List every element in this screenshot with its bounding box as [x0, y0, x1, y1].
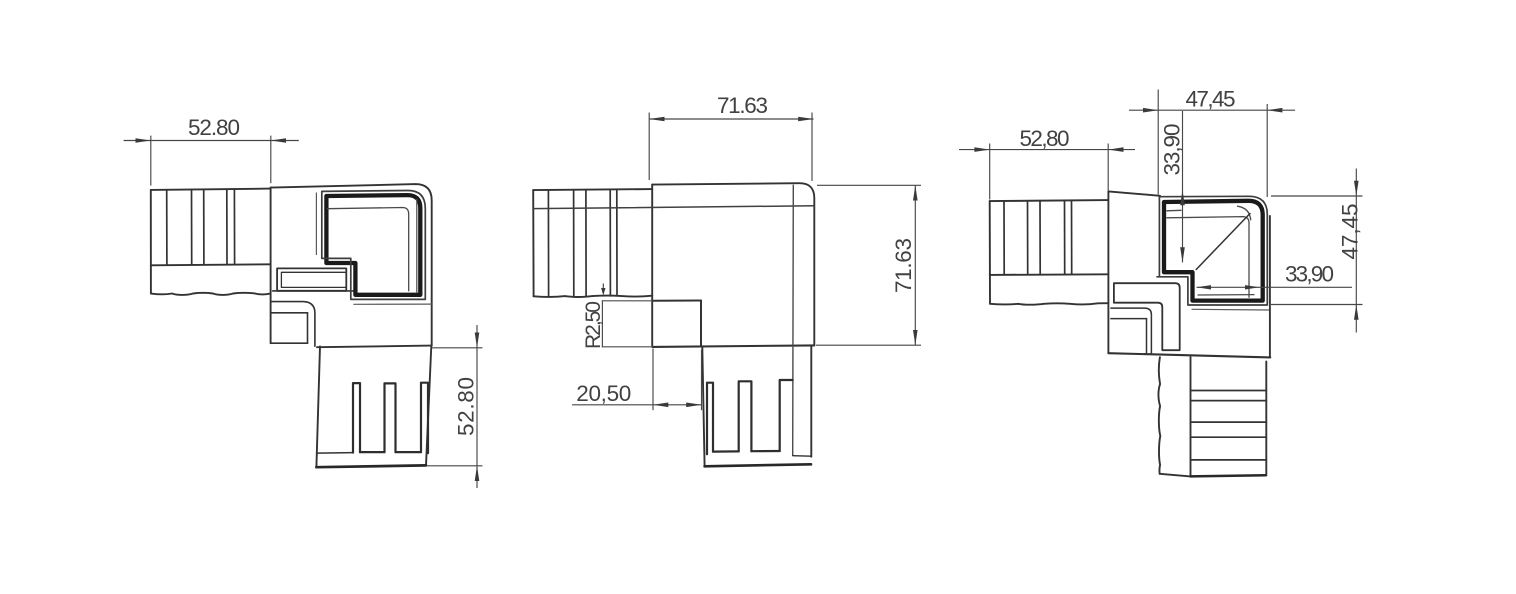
svg-text:52,80: 52,80: [1020, 126, 1070, 151]
svg-text:33,90: 33,90: [1285, 262, 1334, 287]
svg-text:R2,50: R2,50: [582, 301, 605, 349]
svg-text:52.80: 52.80: [188, 115, 240, 140]
svg-text:47,45: 47,45: [1186, 86, 1236, 111]
svg-text:71.63: 71.63: [891, 238, 916, 293]
svg-text:33,90: 33,90: [1160, 124, 1185, 176]
svg-text:20,50: 20,50: [576, 381, 631, 406]
svg-text:47,45: 47,45: [1338, 204, 1363, 260]
svg-text:71.63: 71.63: [717, 93, 768, 118]
svg-text:52.80: 52.80: [454, 377, 479, 436]
